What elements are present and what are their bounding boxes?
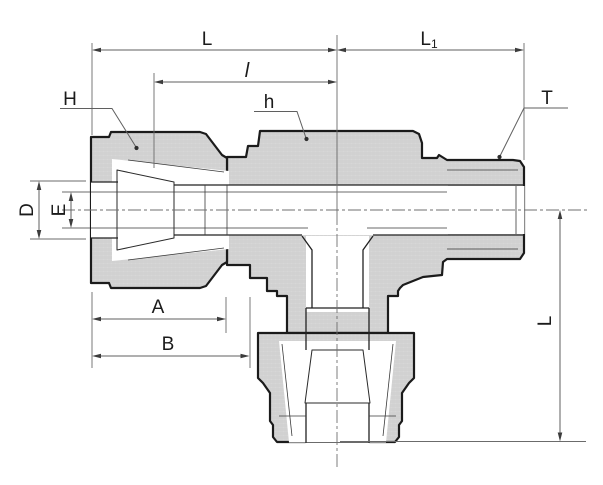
dimension-L: L [92,29,337,52]
dim-label-B: B [162,334,175,355]
dimension-B: B [92,334,250,358]
dim-label-E: E [49,204,70,217]
dimension-l: l [154,60,337,84]
dimension-D: D [17,181,41,239]
dim-label-H: H [63,89,77,110]
dim-label-l: l [245,60,250,82]
dim-label-T: T [541,88,553,109]
dim-label-A: A [152,297,165,318]
dimension-L1: L1 [337,29,524,52]
dim-label-L: L [202,29,213,50]
dim-label-D: D [17,203,38,217]
dimension-A: A [92,297,226,321]
fitting-drawing: L L1 l H h T D [0,0,603,485]
dim-label-L1: L1 [420,29,438,51]
dim-label-h: h [264,92,275,113]
tee-fitting-section-svg: L L1 l H h T D [0,0,603,485]
dim-label-L-vertical: L [535,316,556,327]
leader-T: T [497,88,568,159]
branch-ferrule-cone [305,350,370,403]
dimension-E: E [49,192,73,228]
dimension-L-vertical: L [535,210,562,442]
